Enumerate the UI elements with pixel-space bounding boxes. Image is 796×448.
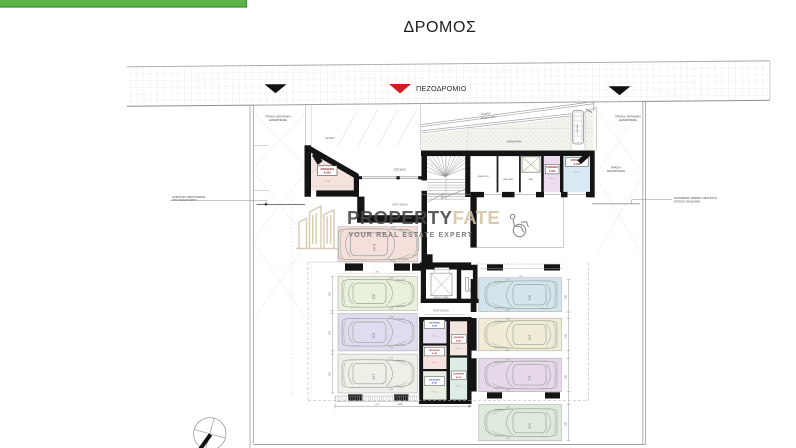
svg-text:ΑΠΟΘΗΚΗ: ΑΠΟΘΗΚΗ [429, 379, 440, 382]
svg-text:ΠΡΑΣΙΑ / ΒΟΤΑΝΙΚΗ: ΠΡΑΣΙΑ / ΒΟΤΑΝΙΚΗ [265, 115, 290, 119]
svg-text:103: 103 [528, 423, 532, 429]
svg-text:ΚΛΙΜΑΚΑ: ΚΛΙΜΑΚΑ [576, 124, 579, 134]
svg-text:301: 301 [528, 295, 532, 301]
svg-text:ΔΡΟΜΟΣ: ΔΡΟΜΟΣ [403, 19, 476, 36]
svg-text:9.5 τμ: 9.5 τμ [456, 386, 463, 388]
svg-text:202: 202 [372, 333, 376, 339]
svg-text:102: 102 [372, 374, 376, 380]
svg-text:1050: 1050 [397, 403, 403, 406]
svg-text:302: 302 [372, 294, 376, 300]
svg-text:500: 500 [565, 294, 568, 299]
svg-text:ΑΠΟΘΗΚΗ: ΑΠΟΘΗΚΗ [320, 167, 334, 171]
svg-text:9.5 τμ: 9.5 τμ [432, 362, 439, 364]
svg-text:Α.203: Α.203 [432, 325, 438, 328]
svg-text:500: 500 [565, 333, 568, 338]
svg-text:ΠΕΖΟΔΡΟΜΙΟ: ΠΕΖΟΔΡΟΜΙΟ [416, 84, 467, 93]
svg-text:ΑΠΟΘΗΚΗ: ΑΠΟΘΗΚΗ [453, 336, 464, 339]
svg-text:BBQ: BBQ [529, 179, 534, 181]
svg-text:3.0 τμ: 3.0 τμ [549, 178, 556, 180]
svg-text:Α.103: Α.103 [432, 352, 438, 355]
svg-text:Α.01: Α.01 [372, 244, 376, 251]
svg-text:ΠΡΑΣΙΑ / ΒΟΤΑΝΙΚΗ: ΠΡΑΣΙΑ / ΒΟΤΑΝΙΚΗ [615, 115, 640, 119]
svg-text:Α.002: Α.002 [324, 171, 332, 175]
svg-text:101: 101 [528, 375, 532, 381]
svg-text:ΕΙΣΟΔΟΣ: ΕΙΣΟΔΟΣ [394, 168, 406, 172]
svg-text:ΠΡΑΣΙΑ: ΠΡΑΣΙΑ [611, 166, 621, 170]
svg-text:ΚΑΥΣΙΜΑ: ΚΑΥΣΙΜΑ [503, 178, 513, 181]
svg-text:Α.001: Α.001 [574, 163, 581, 166]
svg-text:ΙΣΟΓΕΙΟΥ ΟΙΚΟΔΟΜΗΣ: ΙΣΟΓΕΙΟΥ ΟΙΚΟΔΟΜΗΣ [674, 201, 701, 204]
svg-text:ΔΙΑΜΟΡΦΩΣΗ: ΔΙΑΜΟΡΦΩΣΗ [269, 118, 287, 122]
svg-text:PROPERTYFATE: PROPERTYFATE [347, 207, 500, 228]
svg-text:ΑΥΛΑΚΙ: ΑΥΛΑΚΙ [326, 136, 335, 140]
svg-text:500: 500 [565, 374, 568, 379]
svg-text:500: 500 [329, 371, 332, 376]
svg-text:ΛΕΒΗΤ/ΣΙΟ: ΛΕΒΗΤ/ΣΙΟ [478, 176, 490, 178]
svg-text:ΟΡΙΑ ΠΕΖΟΔΡΟΜΙΟΥ: ΟΡΙΑ ΠΕΖΟΔΡΟΜΙΟΥ [172, 199, 197, 202]
svg-text:Α.101: Α.101 [432, 382, 438, 385]
svg-text:ΑΚΑΛΥΨΗ: ΑΚΑΛΥΨΗ [507, 140, 521, 144]
svg-text:ΔΙΑΜΟΡΦΩΣΗ: ΔΙΑΜΟΡΦΩΣΗ [619, 118, 637, 122]
svg-text:ΑΠΟΘΗΚΗ: ΑΠΟΘΗΚΗ [546, 166, 558, 169]
svg-text:Α.201: Α.201 [456, 339, 462, 342]
svg-text:201: 201 [528, 335, 532, 341]
svg-text:YOUR REAL ESTATE EXPERT: YOUR REAL ESTATE EXPERT [349, 232, 473, 239]
svg-text:ΔΙΑΜΟΡΦΩΣΗ: ΔΙΑΜΟΡΦΩΣΗ [607, 169, 625, 173]
svg-text:500: 500 [565, 421, 568, 426]
svg-text:ΑΠΟΘΗΚΗ: ΑΠΟΘΗΚΗ [453, 373, 464, 376]
svg-text:9.5 τμ: 9.5 τμ [432, 392, 439, 394]
svg-text:Α.003: Α.003 [549, 170, 556, 173]
svg-text:ΠΛΑΤΥΣΚΑΛΟ: ΠΛΑΤΥΣΚΑΛΟ [433, 310, 449, 313]
svg-text:ΑΠΟΘΗΚΗ: ΑΠΟΘΗΚΗ [429, 349, 440, 352]
svg-text:500: 500 [329, 291, 332, 296]
svg-text:9.5 τμ: 9.5 τμ [432, 336, 439, 338]
svg-text:7.5 τμ: 7.5 τμ [324, 181, 331, 183]
svg-text:ΑΝΕΛΚΥΣΤΗΡΑΣ: ΑΝΕΛΚΥΣΤΗΡΑΣ [434, 296, 450, 299]
svg-text:Α.102: Α.102 [456, 376, 462, 379]
svg-text:9.5 τμ: 9.5 τμ [456, 348, 463, 350]
svg-text:500: 500 [329, 330, 332, 335]
svg-text:5.0 τμ: 5.0 τμ [573, 172, 580, 174]
svg-text:ΑΠΟΘΗΚΗ: ΑΠΟΘΗΚΗ [429, 322, 440, 325]
